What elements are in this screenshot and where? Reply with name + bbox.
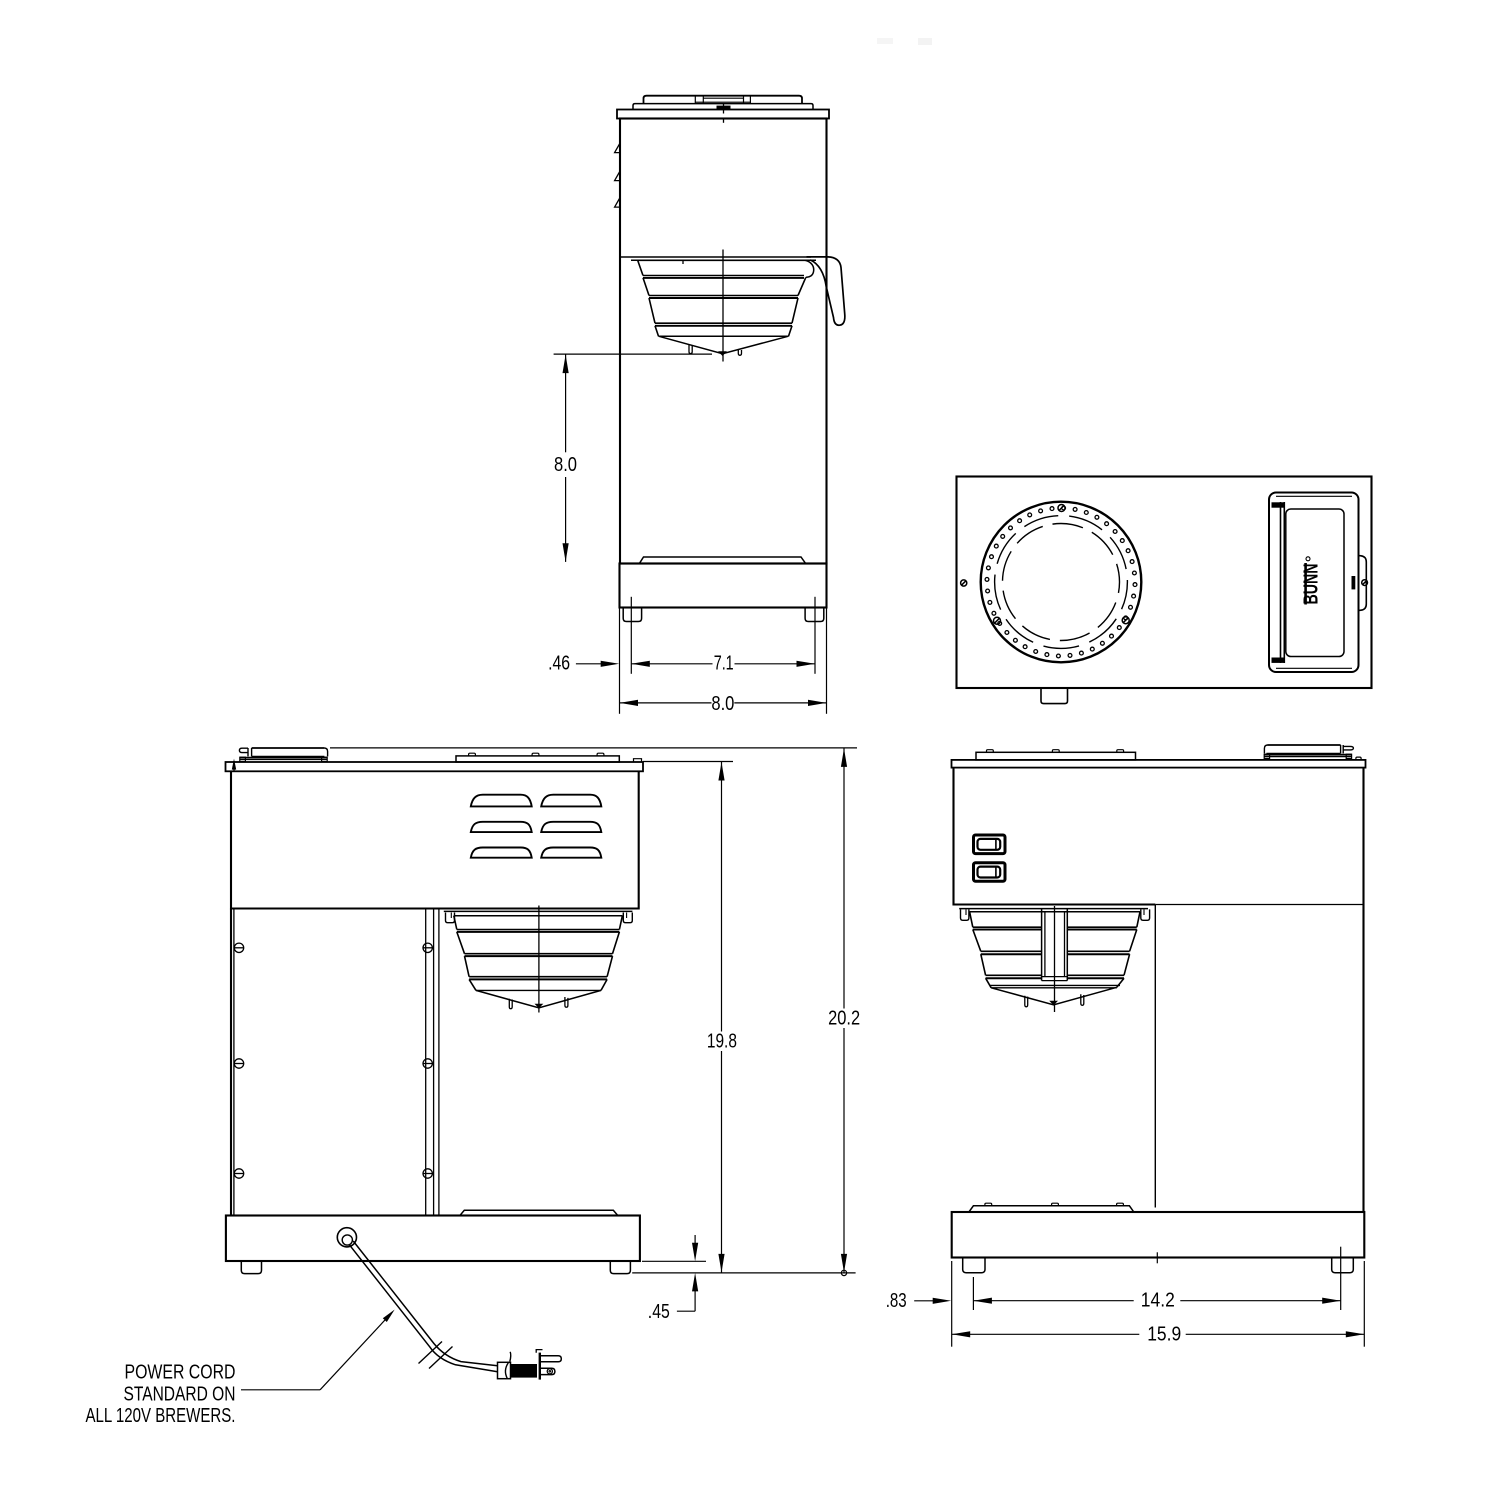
svg-text:7.1: 7.1 — [714, 653, 734, 675]
svg-text:8.0: 8.0 — [711, 693, 734, 715]
svg-text:19.8: 19.8 — [707, 1031, 737, 1053]
svg-text:14.2: 14.2 — [1141, 1290, 1175, 1312]
svg-text:.83: .83 — [886, 1290, 907, 1312]
svg-text:POWER CORD: POWER CORD — [125, 1361, 236, 1383]
svg-text:STANDARD ON: STANDARD ON — [124, 1383, 236, 1405]
svg-text:.46: .46 — [548, 653, 570, 675]
svg-text:ALL 120V BREWERS.: ALL 120V BREWERS. — [86, 1405, 236, 1427]
svg-text:.45: .45 — [648, 1301, 670, 1323]
svg-text:BUNN: BUNN — [1301, 564, 1323, 605]
svg-text:15.9: 15.9 — [1147, 1324, 1181, 1346]
svg-text:20.2: 20.2 — [828, 1008, 860, 1030]
svg-text:8.0: 8.0 — [554, 454, 577, 476]
